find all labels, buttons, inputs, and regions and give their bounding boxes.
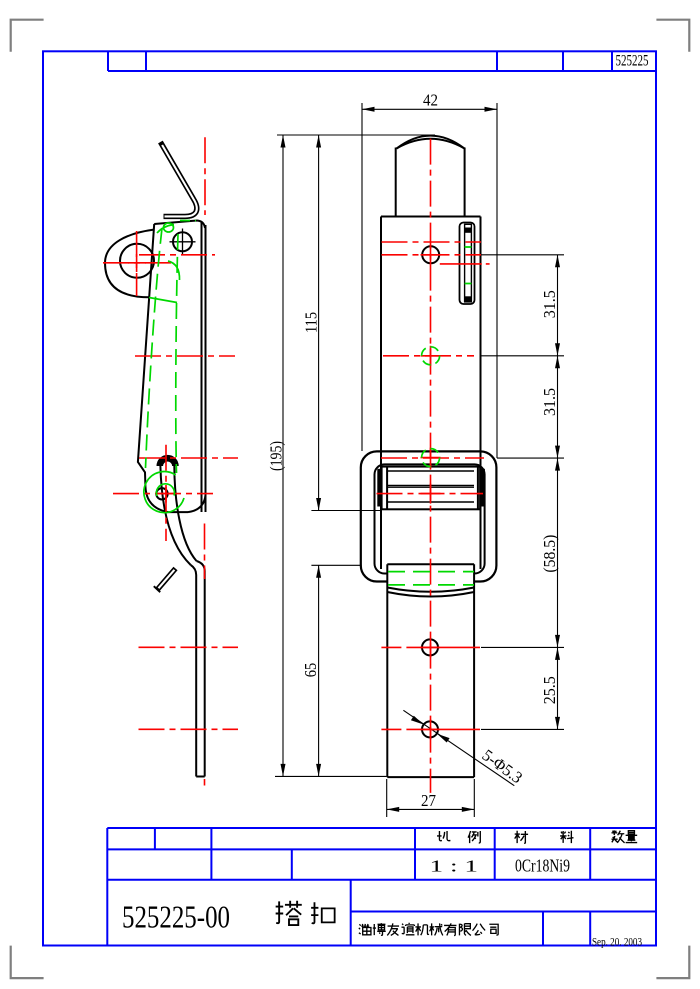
svg-text:(58.5): (58.5) — [540, 535, 559, 573]
svg-text:25.5: 25.5 — [540, 676, 559, 704]
svg-text:Sep. 20. 2003: Sep. 20. 2003 — [592, 937, 642, 949]
svg-text:1 : 1: 1 : 1 — [430, 857, 479, 876]
svg-text:0Cr18Ni9: 0Cr18Ni9 — [515, 856, 570, 876]
svg-text:27: 27 — [421, 791, 436, 810]
svg-text:525225-00: 525225-00 — [122, 898, 230, 934]
svg-text:525225: 525225 — [616, 53, 649, 70]
svg-text:42: 42 — [423, 91, 438, 110]
svg-text:31.5: 31.5 — [540, 388, 559, 416]
svg-text:65: 65 — [301, 663, 320, 678]
svg-text:31.5: 31.5 — [540, 290, 559, 318]
svg-text:115: 115 — [302, 312, 321, 333]
